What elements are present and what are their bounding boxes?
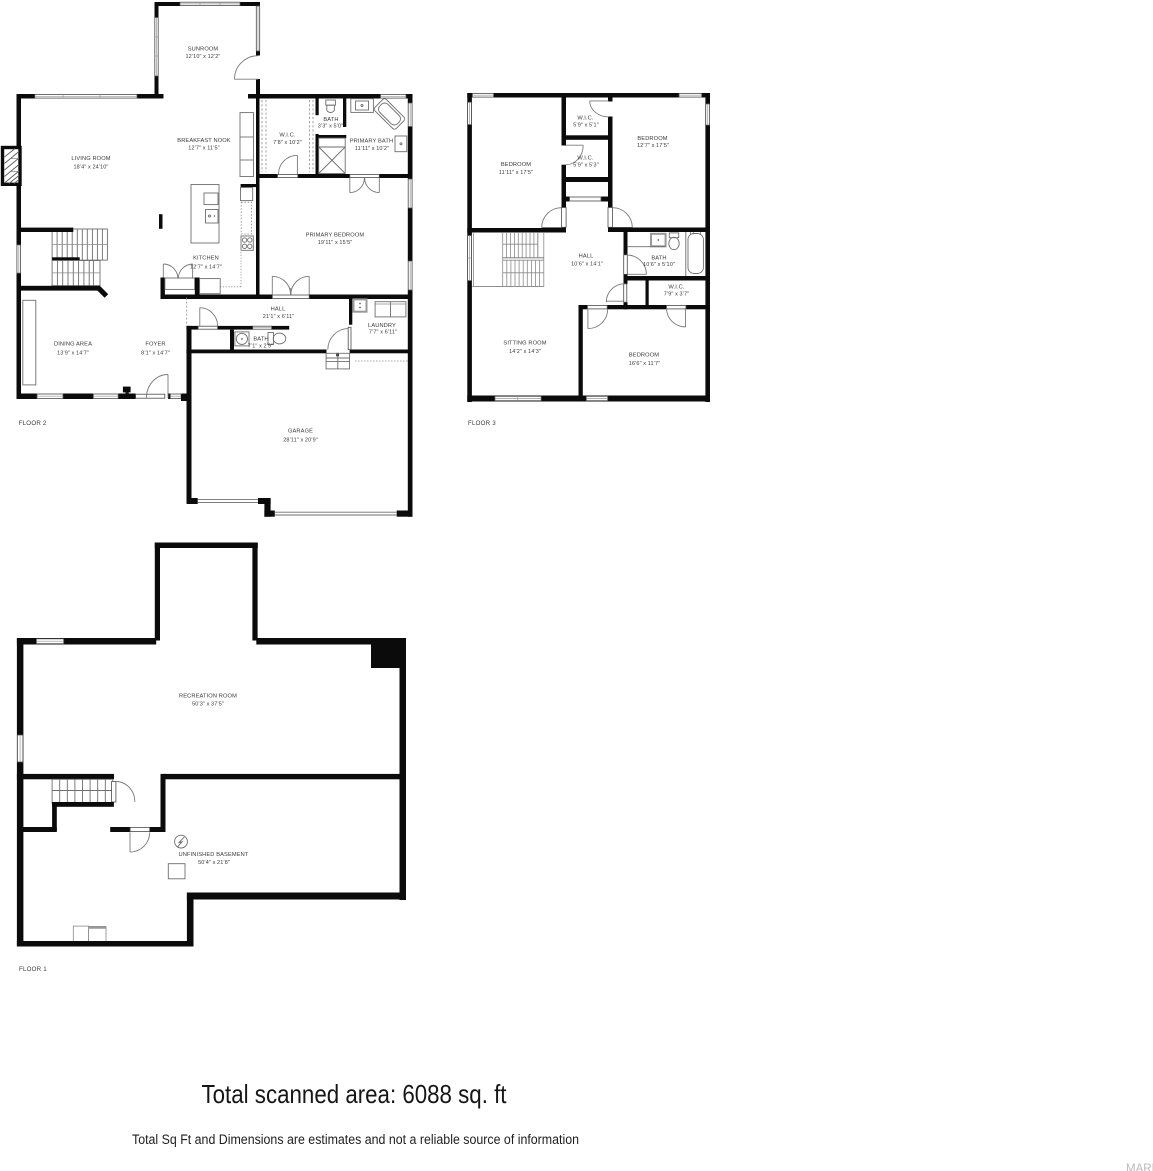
svg-text:10’6" x 14’1": 10’6" x 14’1": [571, 262, 603, 268]
svg-text:BATH: BATH: [253, 337, 268, 343]
svg-text:14’2" x 14’3": 14’2" x 14’3": [509, 349, 541, 355]
svg-text:W.I.C.: W.I.C.: [279, 133, 296, 139]
svg-text:BREAKFAST NOOK: BREAKFAST NOOK: [177, 138, 230, 144]
svg-text:11’11" x 10’2": 11’11" x 10’2": [355, 146, 389, 152]
svg-text:BEDROOM: BEDROOM: [629, 353, 659, 359]
svg-text:SITTING ROOM: SITTING ROOM: [503, 341, 546, 347]
svg-text:7’1" x 2’9": 7’1" x 2’9": [248, 344, 274, 350]
svg-text:UNFINISHED BASEMENT: UNFINISHED BASEMENT: [179, 852, 249, 858]
svg-text:FOYER: FOYER: [145, 342, 165, 348]
svg-text:Total Sq Ft and Dimensions are: Total Sq Ft and Dimensions are estimates…: [132, 1132, 579, 1147]
svg-text:16’6" x 11’7": 16’6" x 11’7": [629, 361, 660, 367]
svg-text:PRIMARY BEDROOM: PRIMARY BEDROOM: [306, 233, 365, 239]
svg-text:12’7" x 14’7": 12’7" x 14’7": [190, 265, 222, 271]
svg-text:SUNROOM: SUNROOM: [188, 47, 219, 53]
svg-text:12’7" x 17’5": 12’7" x 17’5": [637, 143, 669, 149]
svg-text:28’11" x 20’9": 28’11" x 20’9": [283, 438, 318, 444]
svg-text:FLOOR 3: FLOOR 3: [468, 420, 496, 427]
svg-text:19’11" x 15’5": 19’11" x 15’5": [318, 240, 353, 246]
svg-text:5’9" x 5’1": 5’9" x 5’1": [573, 123, 599, 129]
svg-text:50’4" x 21’8": 50’4" x 21’8": [198, 860, 230, 866]
svg-text:FLOOR 1: FLOOR 1: [19, 966, 47, 973]
svg-text:21’1" x 6’11": 21’1" x 6’11": [263, 314, 294, 320]
svg-text:BATH: BATH: [651, 256, 666, 262]
svg-text:BEDROOM: BEDROOM: [637, 136, 667, 142]
svg-text:7’7" x 6’11": 7’7" x 6’11": [369, 330, 397, 336]
svg-text:BATH: BATH: [323, 117, 338, 123]
svg-text:12’10" x 12’2": 12’10" x 12’2": [186, 54, 221, 60]
svg-text:BEDROOM: BEDROOM: [501, 162, 531, 168]
svg-text:50’3" x 37’5": 50’3" x 37’5": [192, 702, 224, 708]
svg-text:LIVING ROOM: LIVING ROOM: [71, 156, 110, 162]
svg-text:LAUNDRY: LAUNDRY: [368, 323, 396, 329]
svg-text:13’9" x 14’7": 13’9" x 14’7": [57, 351, 89, 357]
svg-text:W.I.C.: W.I.C.: [577, 116, 594, 122]
svg-text:FLOOR 2: FLOOR 2: [19, 420, 47, 427]
svg-text:10’6" x 5’10": 10’6" x 5’10": [643, 262, 675, 268]
svg-text:HALL: HALL: [579, 254, 594, 260]
svg-text:3’3" x 5’0": 3’3" x 5’0": [318, 124, 344, 130]
svg-text:18’4" x 24’10": 18’4" x 24’10": [74, 165, 109, 171]
svg-text:11’11" x 17’5": 11’11" x 17’5": [499, 170, 533, 176]
svg-text:W.I.C.: W.I.C.: [577, 156, 594, 162]
svg-text:GARAGE: GARAGE: [288, 429, 313, 435]
svg-text:Total scanned area: 6088 sq. f: Total scanned area: 6088 sq. ft: [202, 1079, 508, 1109]
svg-text:RECREATION ROOM: RECREATION ROOM: [179, 694, 237, 700]
svg-text:PRIMARY BATH: PRIMARY BATH: [350, 139, 393, 145]
svg-text:HALL: HALL: [271, 307, 286, 313]
svg-text:7’9" x 3’7": 7’9" x 3’7": [664, 292, 690, 298]
svg-text:8’1" x 14’7": 8’1" x 14’7": [141, 351, 170, 357]
svg-text:W.I.C.: W.I.C.: [668, 285, 685, 291]
svg-text:KITCHEN: KITCHEN: [193, 256, 219, 262]
svg-text:DINING AREA: DINING AREA: [54, 342, 92, 348]
svg-text:MARIS: MARIS: [1126, 1163, 1153, 1171]
svg-text:7’8" x 10’2": 7’8" x 10’2": [273, 140, 302, 146]
svg-text:5’9" x 5’3": 5’9" x 5’3": [573, 163, 599, 169]
svg-text:12’7" x 11’5": 12’7" x 11’5": [188, 146, 219, 152]
